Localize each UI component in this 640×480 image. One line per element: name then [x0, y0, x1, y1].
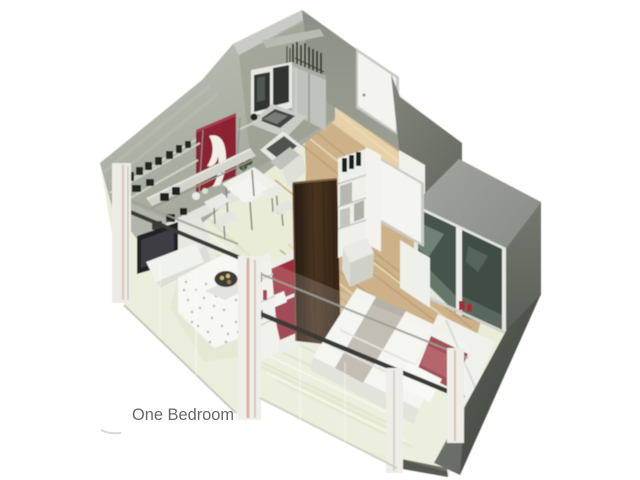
svg-text:One Bedroom: One Bedroom [132, 406, 234, 424]
